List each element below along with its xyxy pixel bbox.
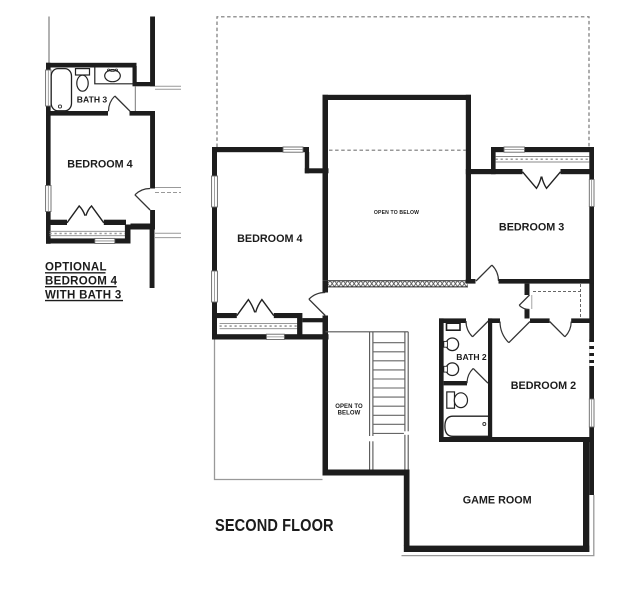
svg-text:OPEN TO: OPEN TO (335, 404, 363, 410)
svg-text:BELOW: BELOW (338, 411, 361, 417)
svg-text:BEDROOM 2: BEDROOM 2 (511, 380, 576, 392)
svg-text:BEDROOM 3: BEDROOM 3 (499, 221, 564, 233)
svg-text:BEDROOM 4: BEDROOM 4 (237, 233, 302, 245)
svg-text:BEDROOM 4: BEDROOM 4 (67, 158, 132, 170)
svg-text:BEDROOM 4: BEDROOM 4 (45, 275, 118, 287)
svg-text:BATH 2: BATH 2 (456, 352, 487, 362)
svg-text:OPEN TO BELOW: OPEN TO BELOW (374, 210, 419, 216)
svg-text:GAME ROOM: GAME ROOM (463, 495, 532, 507)
svg-text:SECOND FLOOR: SECOND FLOOR (215, 516, 334, 536)
svg-text:BATH 3: BATH 3 (77, 95, 108, 105)
svg-text:WITH BATH 3: WITH BATH 3 (45, 289, 122, 301)
svg-text:OPTIONAL: OPTIONAL (45, 262, 107, 274)
